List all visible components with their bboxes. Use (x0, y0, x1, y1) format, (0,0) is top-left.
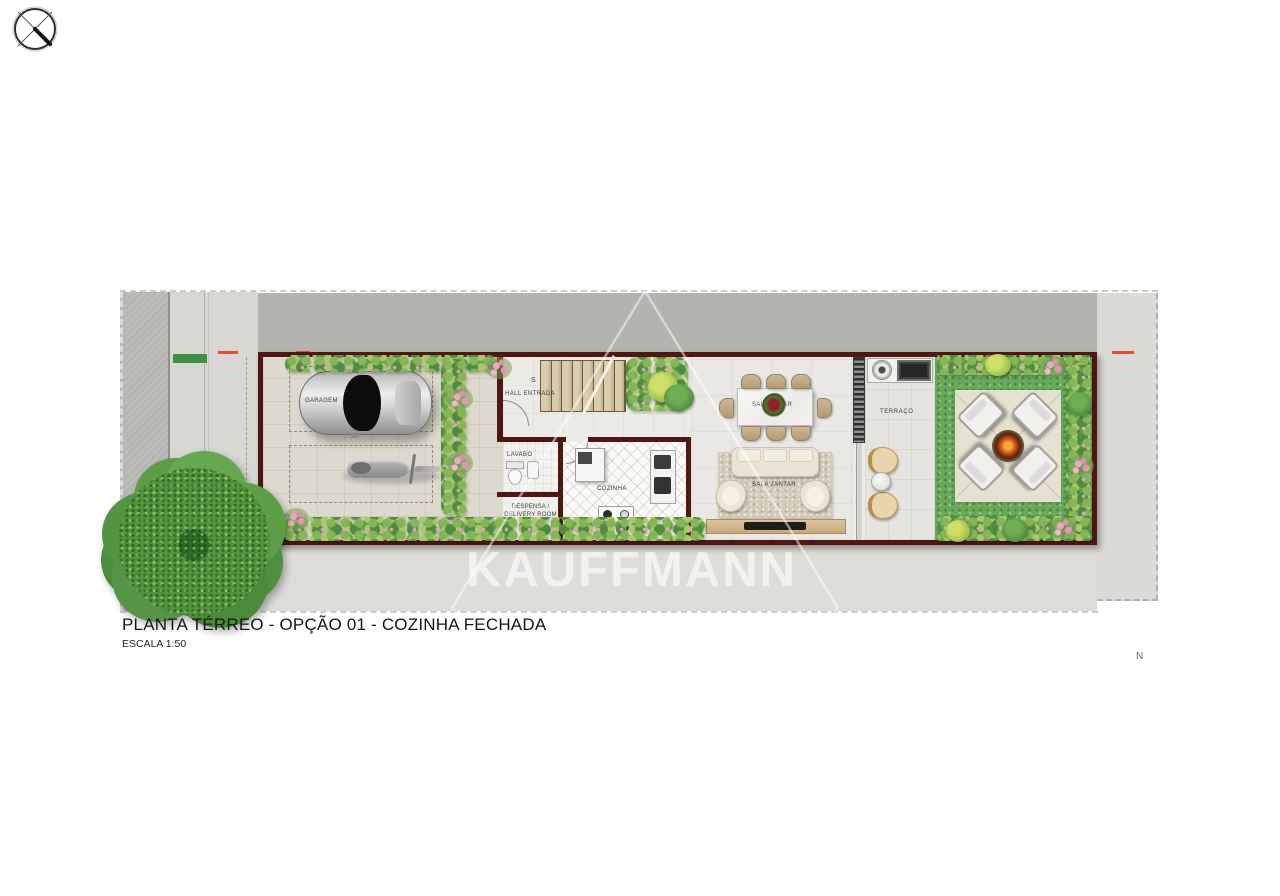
tv (744, 522, 806, 530)
sofa-cushion (789, 449, 813, 462)
motorcycle-front-wheel (415, 466, 441, 472)
planting-bed-bottom (282, 517, 706, 541)
floor-plan-page: GARAGEM S HALL ENTRADA LAVABO DESPENSA /… (0, 0, 1280, 896)
dining-chair (719, 398, 734, 418)
planting-bed-vertical (441, 359, 469, 517)
lavabo-label: LAVABO (507, 452, 533, 459)
terrace-side-table (871, 472, 891, 491)
wall-hall-kitchen (497, 437, 691, 442)
watermark-text: KAUFFMANN (466, 542, 797, 598)
fire-pit (994, 432, 1022, 460)
flower-cluster (486, 357, 512, 379)
pantry-label-line1: DESPENSA / (512, 504, 550, 510)
garden-bed-right (1066, 365, 1092, 535)
bush-green (664, 384, 694, 411)
north-label: N (1136, 651, 1143, 662)
bush-green (1068, 392, 1092, 416)
lavabo-sink (527, 461, 539, 479)
terrace-sink (872, 360, 892, 380)
terrace-label: TERRAÇO (880, 409, 914, 416)
flower-cluster (447, 452, 473, 474)
bush-yellow-green (946, 520, 970, 542)
sofa-cushion (737, 449, 761, 462)
car-windshield (343, 375, 381, 431)
neighbor-strip-right (1097, 293, 1158, 601)
hall-label: HALL ENTRADA (505, 391, 555, 398)
stairs-up-label: S (531, 377, 536, 385)
staircase (540, 360, 626, 412)
car-top-view: GARAGEM (299, 371, 432, 435)
stair-tread (615, 361, 626, 411)
terrace-chair (868, 492, 898, 519)
dining-chair (766, 374, 786, 389)
kitchen-cooktop (654, 477, 671, 494)
sala-jantar-label: SALA JANTAR (752, 482, 796, 489)
alignment-dash-left (218, 351, 238, 354)
garage-label: GARAGEM (305, 398, 338, 405)
dining-chair (741, 426, 761, 441)
kitchen-label: COZINHA (597, 486, 627, 493)
stair-tread (541, 361, 552, 411)
sofa-cushion (763, 449, 787, 462)
flower-cluster (283, 508, 309, 530)
kitchen-island-sink (578, 452, 592, 464)
motorcycle-seat (351, 462, 371, 474)
dining-chair (791, 426, 811, 441)
flower-cluster (1068, 455, 1094, 477)
street-tree (118, 468, 270, 616)
toilet-tank (506, 461, 524, 469)
drawing-title: PLANTA TÉRREO - OPÇÃO 01 - COZINHA FECHA… (122, 615, 546, 635)
louver-partition (853, 357, 865, 443)
motorcycle-top-view (337, 452, 445, 488)
dining-chair (817, 398, 832, 418)
lot-boundary-bottom-dashed (120, 611, 1098, 613)
stair-tread (573, 361, 584, 411)
glass-door-track (856, 443, 862, 540)
terrace-grill (897, 360, 931, 381)
car-rear-deck (395, 381, 421, 425)
bush-green (1002, 518, 1028, 542)
neighbor-lot-top (258, 293, 1097, 352)
car-mirror-bottom (351, 433, 359, 438)
north-compass-icon (0, 0, 72, 64)
bush-yellow-green (985, 354, 1011, 376)
dining-chair (791, 374, 811, 389)
table-flower-centerpiece (762, 393, 788, 419)
flower-cluster (447, 388, 473, 410)
alignment-dash-right (1112, 351, 1134, 354)
stair-tread (562, 361, 573, 411)
flower-cluster (1040, 356, 1066, 378)
wall-lavabo-right (558, 442, 563, 492)
dining-chair (741, 374, 761, 389)
dining-chair (766, 426, 786, 441)
drawing-scale: ESCALA 1:50 (122, 638, 186, 650)
flower-cluster (1050, 517, 1076, 539)
lot-boundary-top-dashed (120, 290, 1158, 292)
curb-grass-strip (173, 354, 207, 363)
wall-lavabo-pantry (497, 492, 563, 497)
terrace-chair (868, 447, 898, 474)
kitchen-sink (654, 455, 671, 469)
stair-tread (552, 361, 563, 411)
